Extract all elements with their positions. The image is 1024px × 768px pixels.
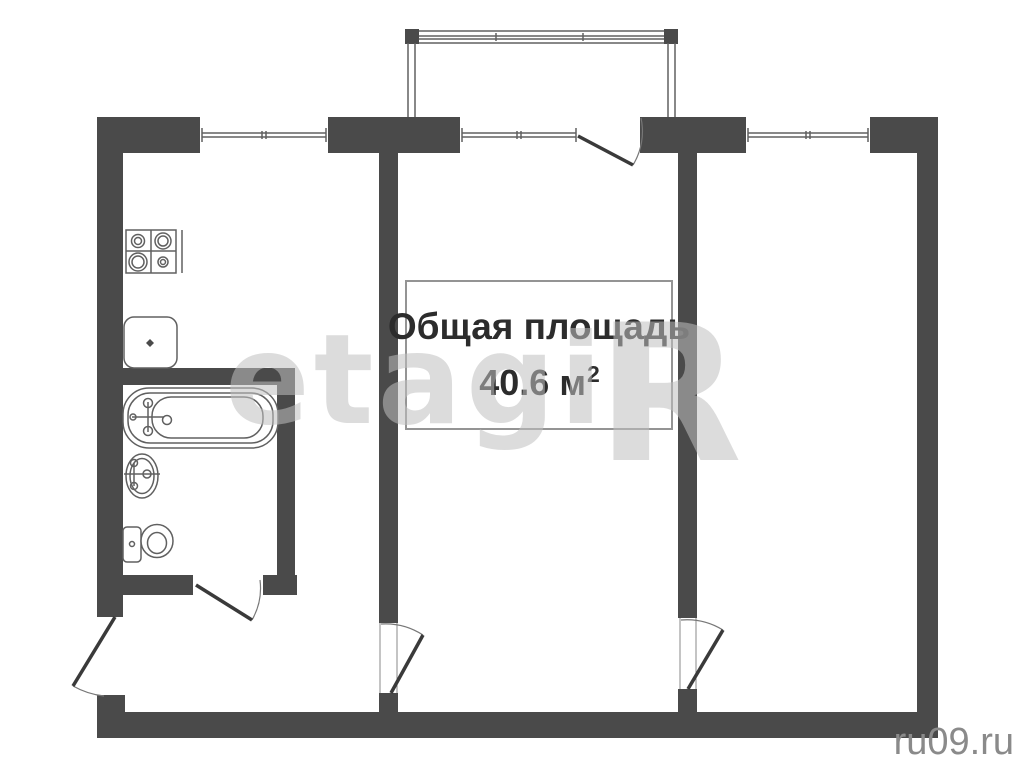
stove	[126, 230, 182, 273]
partition-kitchen-living	[379, 153, 398, 623]
total-area-label-box: Общая площадь 40.6м2	[405, 280, 673, 430]
door-swing-arc	[73, 686, 104, 696]
bathroom-wall-bottom-left	[123, 575, 193, 595]
window-kitchen	[200, 117, 328, 153]
wall-top-mid-right	[640, 117, 746, 153]
door-bedroom	[680, 618, 723, 689]
bathroom-wall-right	[277, 385, 295, 593]
door-kitchen	[380, 623, 423, 693]
wall-bottom	[97, 712, 938, 738]
door-leaf	[196, 585, 252, 620]
door-balcony	[578, 118, 642, 165]
area-superscript: 2	[587, 361, 600, 388]
wall-right	[917, 117, 938, 738]
toilet	[123, 525, 173, 563]
door-bathroom	[196, 580, 261, 620]
bathroom-wall-bottom-right	[263, 575, 297, 595]
door-leaf	[688, 630, 723, 689]
partition-kitchen-living-stub	[379, 693, 398, 712]
wall-left	[97, 117, 123, 617]
bathroom-wall-top	[123, 368, 295, 385]
area-number: 40.6	[479, 362, 549, 403]
kitchen-sink	[124, 317, 177, 368]
door-swing-arc	[681, 620, 723, 630]
door-leaf	[73, 617, 115, 686]
door-leaf	[391, 635, 423, 693]
bathroom-sink	[124, 454, 160, 498]
wall-top-mid-left	[328, 117, 460, 153]
partition-living-bedroom	[678, 153, 697, 618]
bathtub	[123, 388, 278, 448]
door-entrance	[73, 617, 115, 696]
door-leaf	[578, 136, 633, 165]
balcony-railing	[405, 29, 678, 117]
total-area-value: 40.6м2	[479, 362, 599, 404]
door-swing-arc	[252, 580, 261, 620]
window-living-room	[460, 117, 578, 153]
floorplan-image: Общая площадь 40.6м2 etagi R ru09.ru	[0, 0, 1024, 768]
area-unit: м	[559, 362, 586, 403]
partition-living-bedroom-stub	[678, 689, 697, 712]
window-bedroom	[746, 117, 870, 153]
total-area-title: Общая площадь	[388, 306, 690, 348]
door-swing-arc	[381, 624, 423, 635]
